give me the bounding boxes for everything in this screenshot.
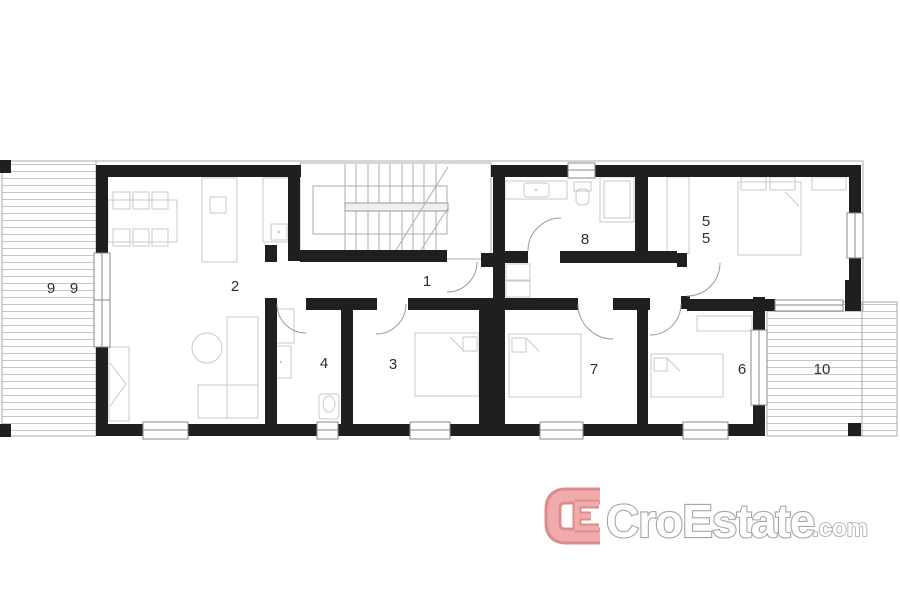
brand-tld: .com [812,515,868,542]
room-label-bedroom-5-b: 5 [702,230,710,247]
bed [651,354,723,397]
window-bottom-4 [540,422,583,439]
bedroom-3-furniture [415,333,479,396]
room-label-bedroom-7: 7 [590,361,598,378]
roof-outline [96,161,863,311]
brand-name: CroEstate [606,495,815,547]
door-wc-4 [277,304,306,333]
room-label-bedroom-6: 6 [738,361,746,378]
window-bottom-3 [410,422,450,439]
room-label-terrace-9-b: 9 [70,280,78,297]
stair-handrail [345,203,448,211]
bedroom-7-furniture [509,334,581,397]
wardrobe [667,177,689,254]
pillow [741,177,766,190]
room-labels: 1 2 3 4 5 5 6 7 8 9 9 10 [47,213,831,378]
toilet [319,394,339,419]
shower [600,177,634,222]
room-label-terrace-10: 10 [814,361,831,378]
window-right-bedroom6 [751,330,767,405]
terrace-9-column-bottom [0,424,11,437]
terrace-10-column [848,423,861,436]
window-right-bedroom5 [847,213,863,258]
door-bedroom-7 [578,304,613,339]
room-label-bedroom-5-a: 5 [702,213,710,230]
window-left [94,253,110,347]
window-bottom-5 [683,422,728,439]
toilet-tank [574,182,591,191]
room-label-bedroom-3: 3 [389,356,397,373]
room-label-bathroom-8: 8 [581,231,589,248]
croestate-logo: CroEstate .com [553,495,868,547]
room-label-terrace-9-a: 9 [47,280,55,297]
pillow [512,338,526,352]
kitchen-island [202,178,237,262]
pillow [770,177,795,190]
bedroom-6-furniture [651,316,752,397]
floor-plan-canvas: 1 2 3 4 5 5 6 7 8 9 9 10 [0,0,900,600]
terrace-10-deck [767,302,897,436]
stair-break-line-2 [421,208,448,250]
bed [415,333,479,396]
door-bedroom-6 [650,304,681,335]
wc-4-fixtures [267,309,339,419]
room-label-wc-4: 4 [320,355,328,372]
terrace-9-column-top [0,160,11,173]
coffee-table [192,333,222,363]
room-label-hall-1: 1 [423,273,431,290]
floor-plan-page: 1 2 3 4 5 5 6 7 8 9 9 10 [0,0,900,600]
window-bottom-1 [143,422,188,439]
desk [697,316,752,331]
door-stairs [447,262,477,292]
room-label-living-2: 2 [231,278,239,295]
bathroom-8-fixtures [505,177,634,297]
sofa-set [109,317,258,421]
terrace-9-deck [2,161,96,436]
pillow [654,358,667,371]
kitchen-counter [263,178,289,242]
door-bedroom-5 [687,263,720,296]
ce-monogram-icon [553,496,600,536]
door-bedroom-3 [376,304,406,334]
window-bottom-2 [317,422,338,439]
bed [509,334,581,397]
dresser [812,177,846,190]
staircase [300,163,491,259]
dining-set [108,192,177,246]
window-top [568,163,595,178]
bedroom-5-furniture [667,177,846,255]
window-terrace-10 [775,300,843,311]
door-bathroom-8 [528,218,561,251]
double-bed [738,182,801,255]
pillow [463,337,477,351]
